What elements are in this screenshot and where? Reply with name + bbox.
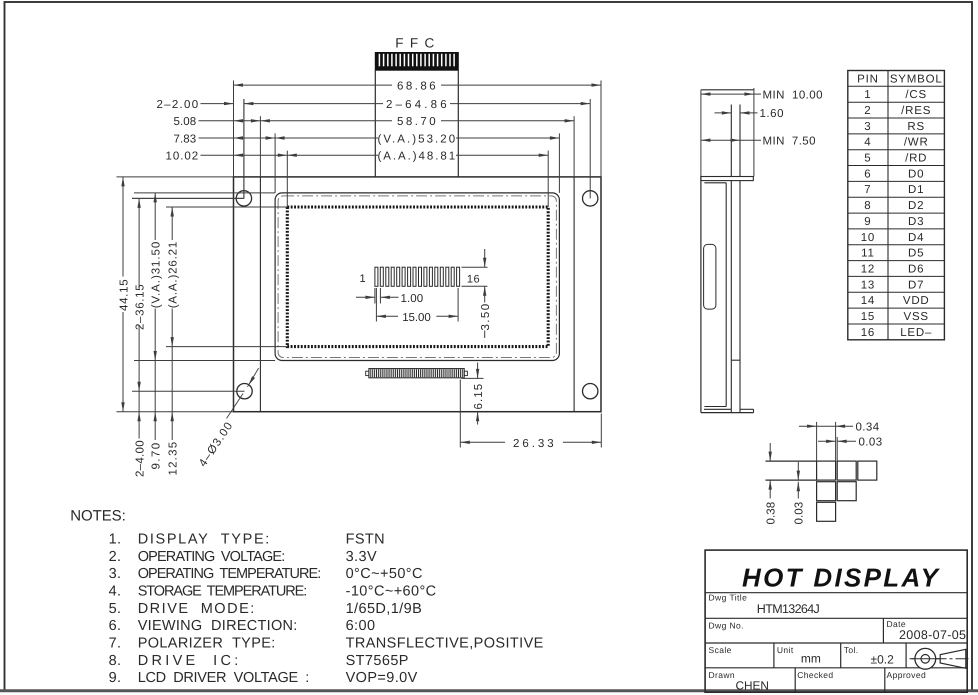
svg-text:mm: mm: [801, 652, 821, 666]
svg-text:44.15: 44.15: [118, 278, 130, 311]
svg-text:16: 16: [861, 327, 875, 339]
svg-text:11: 11: [861, 248, 875, 260]
svg-text:Dwg No.: Dwg No.: [709, 621, 744, 631]
svg-text:SYMBOL: SYMBOL: [890, 73, 943, 85]
svg-text:6:00: 6:00: [346, 618, 376, 634]
svg-text:9: 9: [864, 216, 871, 228]
svg-text:10: 10: [861, 232, 875, 244]
svg-text:10.02: 10.02: [166, 151, 200, 163]
svg-text:FSTN: FSTN: [346, 531, 385, 547]
svg-text:2–64.86: 2–64.86: [386, 99, 448, 111]
svg-text:OPERATING TEMPERATURE:: OPERATING TEMPERATURE:: [138, 566, 322, 582]
svg-text:8: 8: [864, 200, 871, 212]
svg-text:15.00: 15.00: [402, 312, 432, 324]
svg-text:MIN 7.50: MIN 7.50: [763, 136, 816, 148]
svg-text:3: 3: [864, 121, 871, 133]
svg-text:D3: D3: [908, 216, 924, 228]
svg-text:6.: 6.: [109, 618, 122, 634]
svg-text:Dwg Title: Dwg Title: [709, 593, 748, 603]
svg-text:D2: D2: [908, 200, 924, 212]
svg-text:9.70: 9.70: [151, 442, 163, 470]
svg-text:0.34: 0.34: [856, 422, 881, 434]
svg-text:2: 2: [864, 105, 871, 117]
svg-text:D7: D7: [908, 279, 924, 291]
svg-text:58.70: 58.70: [397, 116, 437, 128]
svg-text:1/65D,1/9B: 1/65D,1/9B: [346, 601, 423, 617]
svg-text:16: 16: [467, 274, 480, 286]
svg-text:Checked: Checked: [797, 670, 833, 680]
svg-text:LCD DRIVER VOLTAGE :: LCD DRIVER VOLTAGE :: [138, 670, 310, 686]
svg-text:DRIVE IC:: DRIVE IC:: [138, 653, 239, 669]
svg-text:4–Ø3.00: 4–Ø3.00: [197, 419, 236, 469]
svg-text:/RD: /RD: [905, 153, 927, 165]
svg-text:5: 5: [864, 153, 871, 165]
svg-text:OPERATING VOLTAGE:: OPERATING VOLTAGE:: [138, 549, 286, 565]
svg-text:14: 14: [861, 295, 875, 307]
svg-text:HTM13264J: HTM13264J: [757, 602, 820, 616]
svg-text:NOTES:: NOTES:: [70, 508, 126, 525]
svg-text:4.: 4.: [109, 583, 122, 599]
svg-text:2.: 2.: [109, 549, 122, 565]
svg-text:DRIVE MODE:: DRIVE MODE:: [138, 601, 255, 617]
svg-text:5.08: 5.08: [174, 116, 198, 128]
svg-text:D5: D5: [908, 248, 924, 260]
svg-text:12.35: 12.35: [168, 441, 180, 476]
svg-text:1.00: 1.00: [401, 293, 425, 305]
svg-text:CHEN: CHEN: [736, 679, 769, 693]
svg-text:MIN 10.00: MIN 10.00: [763, 89, 823, 101]
svg-text:2–2.00: 2–2.00: [157, 99, 200, 111]
svg-text:1: 1: [864, 89, 871, 101]
svg-text:26.33: 26.33: [513, 438, 555, 450]
svg-text:STORAGE TEMPERATURE:: STORAGE TEMPERATURE:: [138, 583, 308, 599]
svg-text:/WR: /WR: [904, 137, 929, 149]
svg-text:15: 15: [861, 311, 875, 323]
svg-text:POLARIZER TYPE:: POLARIZER TYPE:: [138, 636, 276, 652]
svg-text:7.: 7.: [109, 636, 122, 652]
svg-text:8.: 8.: [109, 653, 122, 669]
svg-text:Unit: Unit: [777, 645, 794, 655]
svg-text:RS: RS: [907, 121, 925, 133]
svg-text:0.03: 0.03: [859, 437, 884, 449]
svg-text:2008-07-05: 2008-07-05: [899, 628, 966, 642]
svg-text:/CS: /CS: [905, 89, 927, 101]
svg-text:7.83: 7.83: [174, 133, 198, 145]
svg-text:ST7565P: ST7565P: [346, 653, 409, 669]
svg-text:/RES: /RES: [901, 105, 931, 117]
svg-text:(A.A.)26.21: (A.A.)26.21: [168, 240, 180, 308]
svg-text:3.: 3.: [109, 566, 122, 582]
svg-text:1.60: 1.60: [760, 108, 784, 120]
svg-text:9.: 9.: [109, 670, 122, 686]
svg-text:D4: D4: [908, 232, 924, 244]
svg-text:FFC: FFC: [395, 36, 438, 51]
svg-text:13: 13: [861, 279, 875, 291]
svg-text:Scale: Scale: [709, 645, 732, 655]
svg-text:(V.A.)53.20: (V.A.)53.20: [378, 133, 457, 145]
svg-text:Approved: Approved: [887, 670, 927, 680]
svg-text:0.38: 0.38: [766, 501, 778, 525]
svg-text:3.3V: 3.3V: [346, 549, 377, 565]
svg-text:±0.2: ±0.2: [871, 653, 895, 667]
svg-text:1: 1: [359, 273, 365, 285]
svg-text:1.: 1.: [109, 531, 122, 547]
svg-text:DISPLAY TYPE:: DISPLAY TYPE:: [138, 531, 270, 547]
svg-text:0°C~+50°C: 0°C~+50°C: [346, 566, 423, 582]
svg-text:5.: 5.: [109, 601, 122, 617]
svg-text:(V.A.)31.50: (V.A.)31.50: [151, 240, 163, 308]
svg-text:TRANSFLECTIVE,POSITIVE: TRANSFLECTIVE,POSITIVE: [346, 636, 544, 652]
svg-text:7: 7: [864, 184, 871, 196]
svg-text:2–4.00: 2–4.00: [134, 439, 146, 477]
svg-text:VIEWING DIRECTION:: VIEWING DIRECTION:: [138, 618, 298, 634]
svg-text:(A.A.)48.81: (A.A.)48.81: [378, 151, 457, 163]
svg-text:D6: D6: [908, 263, 924, 275]
svg-text:D0: D0: [908, 168, 924, 180]
svg-text:HOT DISPLAY: HOT DISPLAY: [742, 563, 941, 593]
svg-text:-10°C~+60°C: -10°C~+60°C: [346, 583, 437, 599]
svg-text:PIN: PIN: [857, 73, 879, 85]
svg-text:VSS: VSS: [903, 311, 928, 323]
svg-text:6: 6: [864, 168, 871, 180]
svg-text:2–36.15: 2–36.15: [134, 283, 146, 330]
svg-text:LED–: LED–: [900, 327, 932, 339]
svg-text:D1: D1: [908, 184, 924, 196]
svg-text:VDD: VDD: [903, 295, 930, 307]
svg-text:Drawn: Drawn: [709, 670, 736, 680]
svg-text:3.50: 3.50: [480, 303, 492, 331]
svg-text:6.15: 6.15: [473, 383, 485, 410]
svg-text:Tol.: Tol.: [844, 645, 859, 655]
svg-text:0.03: 0.03: [794, 501, 806, 525]
svg-text:4: 4: [864, 137, 871, 149]
svg-text:12: 12: [861, 263, 875, 275]
svg-text:VOP=9.0V: VOP=9.0V: [346, 670, 418, 686]
svg-text:68.86: 68.86: [397, 80, 437, 92]
